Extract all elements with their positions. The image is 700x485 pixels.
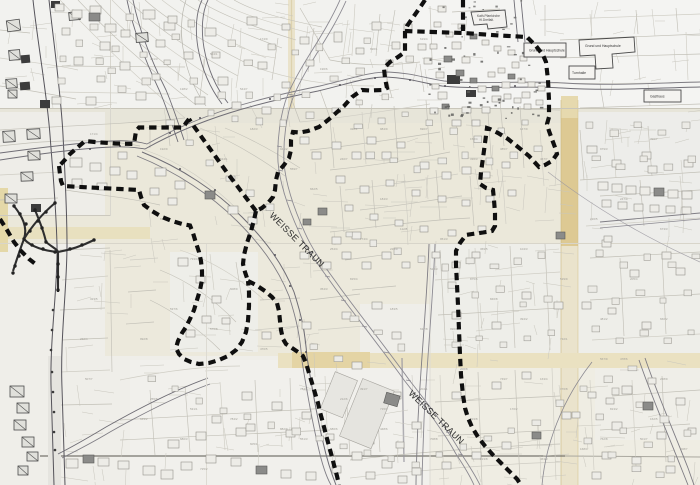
svg-text:946/2: 946/2: [280, 147, 288, 151]
svg-text:232/4: 232/4: [80, 337, 88, 341]
svg-text:212/6: 212/6: [340, 397, 348, 401]
svg-text:183/5: 183/5: [390, 307, 398, 311]
svg-text:247/9: 247/9: [620, 197, 628, 201]
svg-text:544/7: 544/7: [240, 87, 248, 91]
svg-text:Grund und Hauptschule: Grund und Hauptschule: [585, 44, 621, 48]
svg-text:Hl.Dreifalt.: Hl.Dreifalt.: [479, 18, 494, 22]
svg-text:394/2: 394/2: [520, 317, 528, 321]
svg-text:996/6: 996/6: [450, 327, 458, 331]
svg-text:192/9: 192/9: [160, 147, 168, 151]
svg-text:431/3: 431/3: [150, 57, 158, 61]
svg-text:Turnhalle: Turnhalle: [572, 71, 586, 75]
svg-text:174/9: 174/9: [260, 37, 268, 41]
svg-text:815/4: 815/4: [350, 277, 358, 281]
svg-text:162/5: 162/5: [650, 417, 658, 421]
svg-text:529/9: 529/9: [560, 277, 568, 281]
svg-text:Grund und Hauptschule: Grund und Hauptschule: [529, 49, 565, 53]
svg-text:537/6: 537/6: [170, 307, 178, 311]
svg-text:619/4: 619/4: [420, 37, 428, 41]
svg-text:168/4: 168/4: [580, 447, 588, 451]
svg-text:205/4: 205/4: [630, 277, 638, 281]
svg-text:551/3: 551/3: [300, 437, 308, 441]
svg-text:170/2: 170/2: [510, 407, 518, 411]
svg-text:147/9: 147/9: [520, 127, 528, 131]
svg-text:228/9: 228/9: [660, 377, 668, 381]
svg-text:708/8: 708/8: [430, 437, 438, 441]
svg-text:184/3: 184/3: [380, 197, 388, 201]
svg-text:534/1: 534/1: [220, 157, 228, 161]
svg-text:605/1: 605/1: [250, 442, 258, 446]
svg-text:637/8: 637/8: [420, 327, 428, 331]
svg-text:660/2: 660/2: [660, 317, 668, 321]
svg-text:138/2: 138/2: [180, 87, 188, 91]
svg-text:112/8: 112/8: [400, 227, 408, 231]
svg-text:715/1: 715/1: [380, 407, 388, 411]
svg-text:220/9: 220/9: [390, 247, 398, 251]
svg-text:Gasthaus: Gasthaus: [650, 95, 665, 99]
svg-text:481/2: 481/2: [600, 317, 608, 321]
svg-text:369/5: 369/5: [480, 247, 488, 251]
svg-text:762/8: 762/8: [600, 437, 608, 441]
svg-text:528/3: 528/3: [430, 267, 438, 271]
svg-text:507/7: 507/7: [85, 377, 93, 381]
svg-text:673/3: 673/3: [660, 227, 668, 231]
svg-text:463/3: 463/3: [540, 457, 548, 461]
svg-text:123/8: 123/8: [480, 457, 488, 461]
svg-text:448/6: 448/6: [380, 427, 388, 431]
svg-text:784/6: 784/6: [300, 387, 308, 391]
svg-text:396/7: 396/7: [650, 137, 658, 141]
svg-text:531/1: 531/1: [190, 407, 198, 411]
svg-text:725/2: 725/2: [200, 467, 208, 471]
svg-text:686/6: 686/6: [330, 427, 338, 431]
svg-text:104/3: 104/3: [520, 247, 528, 251]
svg-text:220/5: 220/5: [590, 217, 598, 221]
svg-text:467/7: 467/7: [540, 157, 548, 161]
svg-text:662/5: 662/5: [310, 187, 318, 191]
svg-text:336/3: 336/3: [470, 157, 478, 161]
svg-text:255/8: 255/8: [150, 397, 158, 401]
svg-text:328/1: 328/1: [350, 127, 358, 131]
svg-text:846/8: 846/8: [490, 297, 498, 301]
svg-text:732/1: 732/1: [560, 337, 568, 341]
svg-text:478/6: 478/6: [620, 357, 628, 361]
svg-text:875/6: 875/6: [470, 277, 478, 281]
svg-text:649/2: 649/2: [140, 417, 148, 421]
svg-text:504/1: 504/1: [210, 52, 218, 56]
svg-text:323/5: 323/5: [90, 297, 98, 301]
svg-text:376/8: 376/8: [560, 387, 568, 391]
svg-text:204/1: 204/1: [420, 387, 428, 391]
svg-text:171/4: 171/4: [90, 132, 98, 136]
svg-text:690/7: 690/7: [420, 127, 428, 131]
svg-text:501/7: 501/7: [640, 437, 648, 441]
svg-text:559/7: 559/7: [290, 167, 298, 171]
svg-text:784/2: 784/2: [230, 417, 238, 421]
svg-text:774/4: 774/4: [360, 237, 368, 241]
svg-text:882/9: 882/9: [280, 427, 288, 431]
svg-text:567/9: 567/9: [600, 357, 608, 361]
svg-text:254/4: 254/4: [330, 247, 338, 251]
svg-text:196/6: 196/6: [320, 67, 328, 71]
svg-text:150/4: 150/4: [470, 137, 478, 141]
svg-text:508/7: 508/7: [680, 447, 688, 451]
svg-text:240/7: 240/7: [340, 157, 348, 161]
svg-text:182/3: 182/3: [250, 127, 258, 131]
svg-text:680/3: 680/3: [180, 437, 188, 441]
svg-text:984/9: 984/9: [380, 127, 388, 131]
svg-text:992/8: 992/8: [140, 337, 148, 341]
svg-text:385/7: 385/7: [500, 147, 508, 151]
svg-text:951/3: 951/3: [440, 237, 448, 241]
svg-text:470/5: 470/5: [260, 347, 268, 351]
svg-text:206/8: 206/8: [460, 367, 468, 371]
svg-text:608/9: 608/9: [230, 287, 238, 291]
svg-text:163/4: 163/4: [540, 377, 548, 381]
svg-text:696/1: 696/1: [370, 47, 378, 51]
svg-text:354/3: 354/3: [320, 287, 328, 291]
svg-text:391/7: 391/7: [360, 387, 368, 391]
svg-text:979/3: 979/3: [600, 147, 608, 151]
svg-text:733/4: 733/4: [190, 257, 198, 261]
svg-text:749/7: 749/7: [500, 377, 508, 381]
svg-text:813/2: 813/2: [610, 407, 618, 411]
svg-text:576/8: 576/8: [210, 327, 218, 331]
